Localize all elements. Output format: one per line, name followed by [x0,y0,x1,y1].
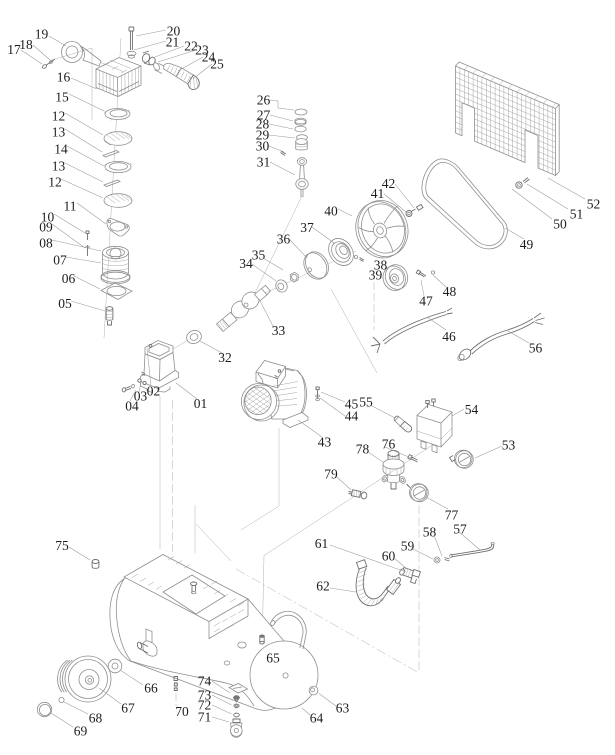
svg-text:71: 71 [198,710,212,725]
svg-text:12: 12 [48,175,62,190]
svg-text:26: 26 [257,93,271,108]
svg-text:04: 04 [125,399,139,414]
svg-text:39: 39 [369,268,383,283]
svg-text:57: 57 [453,522,467,537]
svg-text:35: 35 [252,248,266,263]
svg-text:05: 05 [58,296,72,311]
svg-text:53: 53 [502,438,516,453]
svg-text:13: 13 [52,159,66,174]
svg-text:37: 37 [300,220,314,235]
svg-text:77: 77 [445,508,459,523]
svg-text:68: 68 [89,711,103,726]
svg-text:09: 09 [39,220,53,235]
svg-text:46: 46 [442,329,456,344]
svg-text:07: 07 [53,253,67,268]
svg-text:06: 06 [62,271,76,286]
svg-text:21: 21 [166,35,180,50]
svg-text:31: 31 [257,155,271,170]
svg-text:60: 60 [382,549,396,564]
svg-text:12: 12 [52,109,66,124]
svg-text:14: 14 [54,142,68,157]
svg-text:49: 49 [520,237,534,252]
svg-text:67: 67 [121,701,135,716]
svg-text:43: 43 [318,435,332,450]
svg-text:11: 11 [64,199,77,214]
svg-text:40: 40 [324,204,338,219]
svg-text:36: 36 [277,232,291,247]
svg-text:34: 34 [239,256,253,271]
svg-text:25: 25 [210,57,224,72]
svg-text:16: 16 [57,70,71,85]
svg-text:58: 58 [423,525,437,540]
svg-text:55: 55 [359,395,373,410]
svg-text:33: 33 [272,323,286,338]
svg-text:15: 15 [55,90,69,105]
svg-text:52: 52 [587,197,601,212]
svg-text:30: 30 [256,139,270,154]
svg-text:65: 65 [266,651,280,666]
svg-text:51: 51 [570,207,584,222]
svg-text:70: 70 [175,704,189,719]
svg-text:79: 79 [324,467,338,482]
svg-text:50: 50 [553,217,567,232]
svg-text:54: 54 [465,402,479,417]
svg-text:76: 76 [382,437,396,452]
svg-text:64: 64 [310,711,324,726]
svg-text:63: 63 [336,701,350,716]
svg-text:59: 59 [401,539,415,554]
svg-text:08: 08 [39,236,53,251]
svg-text:44: 44 [345,409,359,424]
svg-text:47: 47 [419,294,433,309]
svg-text:78: 78 [356,442,370,457]
svg-text:02: 02 [147,384,161,399]
svg-text:42: 42 [382,176,396,191]
svg-text:18: 18 [19,37,33,52]
svg-text:69: 69 [74,724,88,739]
svg-text:19: 19 [35,27,49,42]
svg-text:61: 61 [315,536,329,551]
svg-text:75: 75 [55,538,69,553]
svg-text:62: 62 [316,579,330,594]
svg-text:66: 66 [144,681,158,696]
svg-text:56: 56 [529,341,543,356]
svg-text:13: 13 [52,125,66,140]
svg-text:74: 74 [198,674,212,689]
